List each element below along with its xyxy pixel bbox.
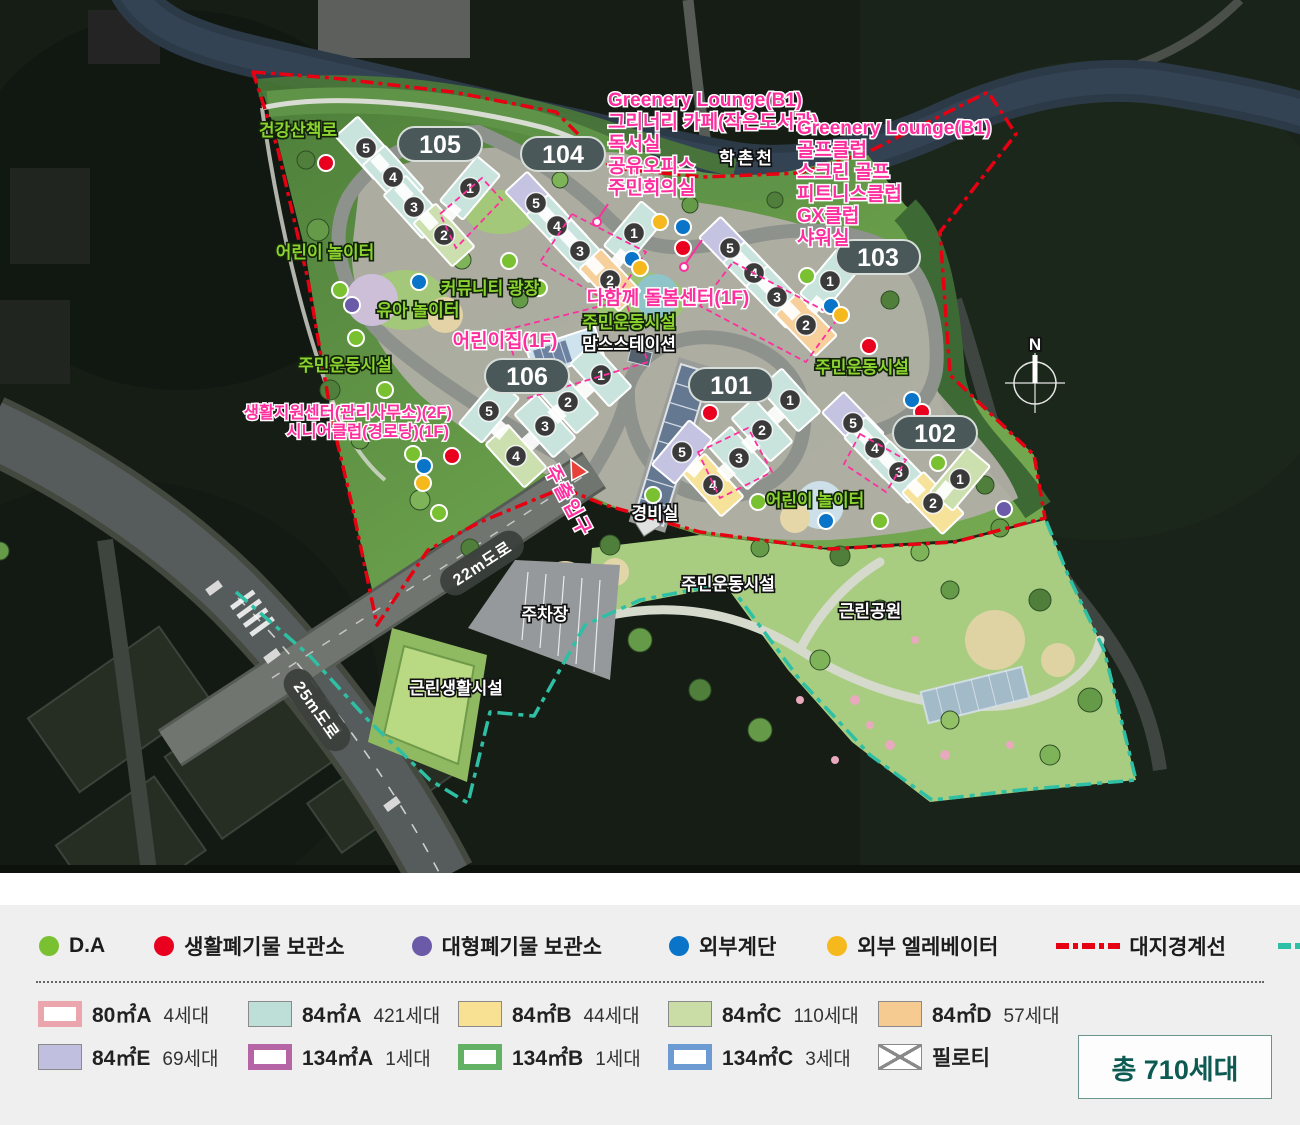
legend-divider <box>36 981 1264 983</box>
health-trail-label: 건강산책로 <box>259 121 338 140</box>
legend-item-bulky-waste: 대형폐기물 보관소 <box>411 931 602 961</box>
sports-103-label: 주민운동시설 <box>815 358 909 377</box>
svg-text:3: 3 <box>410 199 418 215</box>
parking-label: 주차장 <box>522 605 569 624</box>
guard-post-label: 경비실 <box>632 504 679 523</box>
swatch-84c <box>668 1001 712 1027</box>
total-units-box: 총 710세대 <box>1078 1035 1272 1099</box>
swatch-134c <box>668 1044 712 1070</box>
svg-text:주민회의실: 주민회의실 <box>608 177 695 199</box>
badge-102: 102 <box>893 416 977 450</box>
legend-item-site-boundary: 대지경계선 <box>1056 931 1226 961</box>
sports-park-label: 주민운동시설 <box>681 575 775 594</box>
svg-text:샤워실: 샤워실 <box>797 227 849 249</box>
unit-type-84e: 84㎡E69세대 <box>38 1042 248 1072</box>
svg-text:3: 3 <box>773 289 781 305</box>
unit-type-84c: 84㎡C110세대 <box>668 999 878 1029</box>
senior-club-label: 시니어클럽(경로당)(1F) <box>286 422 449 441</box>
svg-text:3: 3 <box>541 418 549 434</box>
svg-text:독서실: 독서실 <box>608 133 660 155</box>
site-plan-page: 5 4 3 2 1 5 4 3 2 1 5 4 3 2 1 1 2 3 4 5 … <box>0 0 1300 1125</box>
svg-text:1: 1 <box>826 273 834 289</box>
svg-text:101: 101 <box>710 372 752 400</box>
svg-text:공유오피스: 공유오피스 <box>608 155 695 177</box>
park-label: 근린공원 <box>839 602 902 621</box>
legend-item-district-boundary: 구역경계선 <box>1278 931 1300 961</box>
svg-text:104: 104 <box>542 141 584 169</box>
unit-type-piloti: 필로티 <box>878 1042 1088 1072</box>
unit-type-84d: 84㎡D57세대 <box>878 999 1088 1029</box>
svg-text:스크린 골프: 스크린 골프 <box>797 161 890 183</box>
svg-text:5: 5 <box>532 195 540 211</box>
svg-text:GX클럽: GX클럽 <box>797 205 859 227</box>
swatch-84a <box>248 1001 292 1027</box>
svg-text:5: 5 <box>726 240 734 256</box>
svg-text:2: 2 <box>802 317 810 333</box>
svg-text:5: 5 <box>362 140 370 156</box>
sports-center-label: 주민운동시설 <box>582 313 676 332</box>
svg-text:2: 2 <box>606 272 614 288</box>
svg-text:2: 2 <box>929 495 937 511</box>
badge-101: 101 <box>689 368 773 402</box>
svg-text:5: 5 <box>485 403 493 419</box>
unit-type-84b: 84㎡B44세대 <box>458 999 668 1029</box>
site-boundary-line-icon <box>1056 942 1120 950</box>
svg-text:4: 4 <box>512 448 520 464</box>
svg-text:4: 4 <box>389 169 397 185</box>
swatch-piloti <box>878 1044 922 1070</box>
da-dot-icon <box>38 935 60 957</box>
swatch-84d <box>878 1001 922 1027</box>
care-center-label: 다함께 돌봄센터(1F) <box>587 287 749 309</box>
moms-station-label: 맘스스테이션 <box>582 335 676 354</box>
kids-playground-east-label: 어린이 놀이터 <box>766 491 865 510</box>
unit-type-134c: 134㎡C3세대 <box>668 1042 878 1072</box>
svg-text:2: 2 <box>758 422 766 438</box>
badge-105: 105 <box>398 127 482 161</box>
exterior-stairs-dot-icon <box>668 935 690 957</box>
legend-item-exterior-elevator: 외부 엘레베이터 <box>826 931 998 961</box>
badge-106: 106 <box>485 359 569 393</box>
kids-playground-west-label: 어린이 놀이터 <box>276 243 375 262</box>
svg-text:105: 105 <box>419 131 461 159</box>
household-waste-dot-icon <box>153 935 175 957</box>
badge-104: 104 <box>521 137 605 171</box>
svg-text:102: 102 <box>914 420 956 448</box>
svg-text:Greenery Lounge(B1): Greenery Lounge(B1) <box>797 118 991 139</box>
svg-text:2: 2 <box>564 394 572 410</box>
toddler-playground-label: 유아 놀이터 <box>377 301 460 320</box>
svg-text:1: 1 <box>956 471 964 487</box>
svg-text:106: 106 <box>506 363 548 391</box>
legend-item-household-waste: 생활폐기물 보관소 <box>153 931 344 961</box>
swatch-134b <box>458 1044 502 1070</box>
swatch-84b <box>458 1001 502 1027</box>
exterior-elevator-dot-icon <box>826 935 848 957</box>
svg-text:피트니스클럽: 피트니스클럽 <box>797 183 902 205</box>
bulky-waste-dot-icon <box>411 935 433 957</box>
svg-text:1: 1 <box>630 225 638 241</box>
svg-text:4: 4 <box>871 440 879 456</box>
svg-text:1: 1 <box>786 392 794 408</box>
site-plan-map: 5 4 3 2 1 5 4 3 2 1 5 4 3 2 1 1 2 3 4 5 … <box>0 0 1300 873</box>
support-center-label: 생활지원센터(관리사무소)(2F) <box>244 402 452 422</box>
legend-item-exterior-stairs: 외부계단 <box>668 931 776 961</box>
swatch-134a <box>248 1044 292 1070</box>
stream-label: 학촌천 <box>719 149 775 168</box>
legend-panel: D.A 생활폐기물 보관소 대형폐기물 보관소 외부계단 외부 엘레베이터 대지… <box>0 905 1300 1125</box>
svg-text:그리너리 카페(작은도서관): 그리너리 카페(작은도서관) <box>608 111 818 133</box>
svg-text:N: N <box>1029 335 1041 354</box>
white-divider-band <box>0 873 1300 905</box>
daycare-label: 어린이집(1F) <box>453 330 558 352</box>
facility-legend-row: D.A 생활폐기물 보관소 대형폐기물 보관소 외부계단 외부 엘레베이터 대지… <box>0 905 1300 961</box>
swatch-84e <box>38 1044 82 1070</box>
sports-west-label: 주민운동시설 <box>298 356 392 375</box>
svg-text:5: 5 <box>678 444 686 460</box>
svg-text:골프클럽: 골프클럽 <box>797 139 867 161</box>
svg-text:Greenery Lounge(B1): Greenery Lounge(B1) <box>608 90 802 111</box>
unit-type-134b: 134㎡B1세대 <box>458 1042 668 1072</box>
neighborhood-facility-label: 근린생활시설 <box>409 678 503 698</box>
community-plaza-label: 커뮤니티 광장 <box>441 279 540 298</box>
svg-text:3: 3 <box>576 243 584 259</box>
unit-type-80a: 80㎡A4세대 <box>38 999 248 1029</box>
unit-type-134a: 134㎡A1세대 <box>248 1042 458 1072</box>
district-boundary-line-icon <box>1278 942 1300 950</box>
svg-text:5: 5 <box>849 415 857 431</box>
svg-text:1: 1 <box>466 180 474 196</box>
legend-item-da: D.A <box>38 934 105 958</box>
svg-text:3: 3 <box>735 450 743 466</box>
svg-text:103: 103 <box>857 244 899 272</box>
unit-type-84a: 84㎡A421세대 <box>248 999 458 1029</box>
swatch-80a <box>38 1001 82 1027</box>
